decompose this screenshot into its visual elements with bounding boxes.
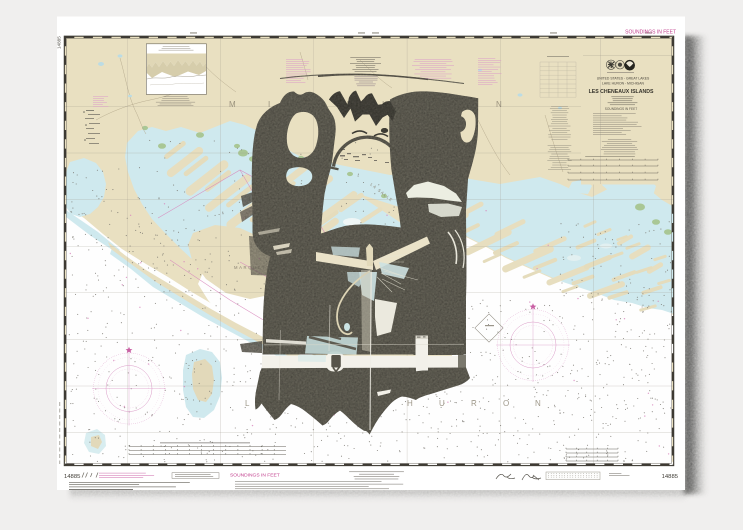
svg-text:SOUNDINGS IN FEET: SOUNDINGS IN FEET xyxy=(230,473,280,479)
svg-text:L: L xyxy=(245,399,250,408)
svg-text:N: N xyxy=(535,399,541,408)
svg-text:LAKE HURON - MICHIGAN: LAKE HURON - MICHIGAN xyxy=(602,81,645,85)
svg-text:U: U xyxy=(439,399,445,408)
svg-text:SOUNDINGS IN FEET: SOUNDINGS IN FEET xyxy=(605,107,637,111)
svg-text:M: M xyxy=(229,100,236,109)
svg-text:N: N xyxy=(496,100,502,109)
svg-text:H: H xyxy=(407,399,413,408)
svg-text:I: I xyxy=(268,100,270,109)
svg-text:UNITED STATES - GREAT LAKES: UNITED STATES - GREAT LAKES xyxy=(597,76,650,80)
svg-text:LES CHENEAUX ISLANDS: LES CHENEAUX ISLANDS xyxy=(589,89,654,95)
svg-text:SOUNDINGS IN FEET: SOUNDINGS IN FEET xyxy=(625,30,676,36)
svg-text:14885: 14885 xyxy=(57,36,62,49)
svg-text:O: O xyxy=(503,399,509,408)
svg-text:R: R xyxy=(471,399,477,408)
svg-text:14885: 14885 xyxy=(662,474,679,480)
svg-text:14885: 14885 xyxy=(64,474,81,480)
